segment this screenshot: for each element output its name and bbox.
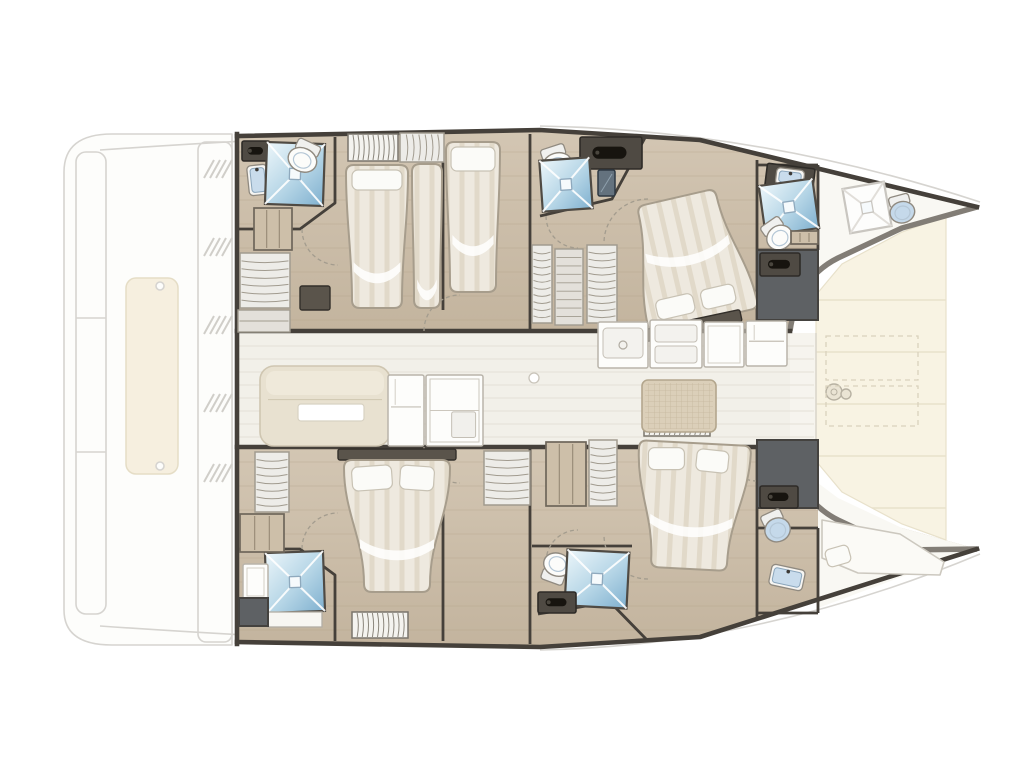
fridge — [746, 321, 787, 366]
crew-shower — [842, 182, 891, 234]
swim-platform — [76, 152, 106, 614]
galley-sink-unit — [598, 322, 648, 368]
galley-counter — [704, 322, 744, 367]
galley-cabinet — [388, 375, 424, 446]
catamaran-floorplan — [0, 0, 1024, 768]
cabinet — [243, 564, 268, 600]
wardrobe — [589, 440, 617, 506]
floorplan-canvas — [0, 0, 1024, 768]
wardrobe — [484, 451, 530, 505]
salon-table — [298, 404, 364, 421]
double-bed — [346, 165, 408, 308]
locker — [760, 253, 800, 276]
wardrobe — [255, 452, 289, 512]
shower-bench — [268, 612, 322, 627]
window-blind — [348, 134, 398, 161]
wardrobe — [400, 133, 444, 162]
shower — [539, 157, 592, 211]
pillow — [399, 465, 435, 491]
deck-fitting — [156, 282, 164, 290]
wardrobe — [587, 245, 617, 323]
drawers — [555, 249, 583, 325]
wardrobe — [240, 253, 290, 308]
locker — [760, 486, 798, 508]
shelves — [546, 442, 586, 506]
window-blind — [352, 612, 408, 638]
step — [300, 286, 330, 310]
galley-stove — [650, 320, 702, 368]
shelves — [254, 208, 292, 250]
wardrobe — [532, 245, 552, 323]
pillow — [351, 465, 393, 492]
drawers — [238, 310, 290, 332]
mirror-cabinet — [598, 170, 615, 196]
pillow — [352, 170, 402, 190]
technical-space — [239, 598, 268, 626]
locker — [538, 592, 576, 613]
shower — [265, 551, 325, 613]
shelves — [240, 514, 284, 552]
single-bed — [446, 142, 500, 292]
cockpit-bench — [198, 142, 232, 642]
shelf — [791, 231, 818, 244]
pillow — [451, 147, 495, 171]
aft-sunpad — [126, 278, 178, 474]
headboard — [338, 449, 456, 460]
galley-cabinet — [426, 375, 483, 446]
ceiling-light — [529, 373, 539, 383]
forward-cockpit-floor — [790, 333, 816, 447]
mattress — [412, 164, 442, 308]
pillow — [648, 448, 684, 470]
pillow — [695, 448, 729, 473]
deck-fitting — [156, 462, 164, 470]
foredeck — [816, 216, 946, 540]
cockpit-table — [642, 380, 716, 432]
